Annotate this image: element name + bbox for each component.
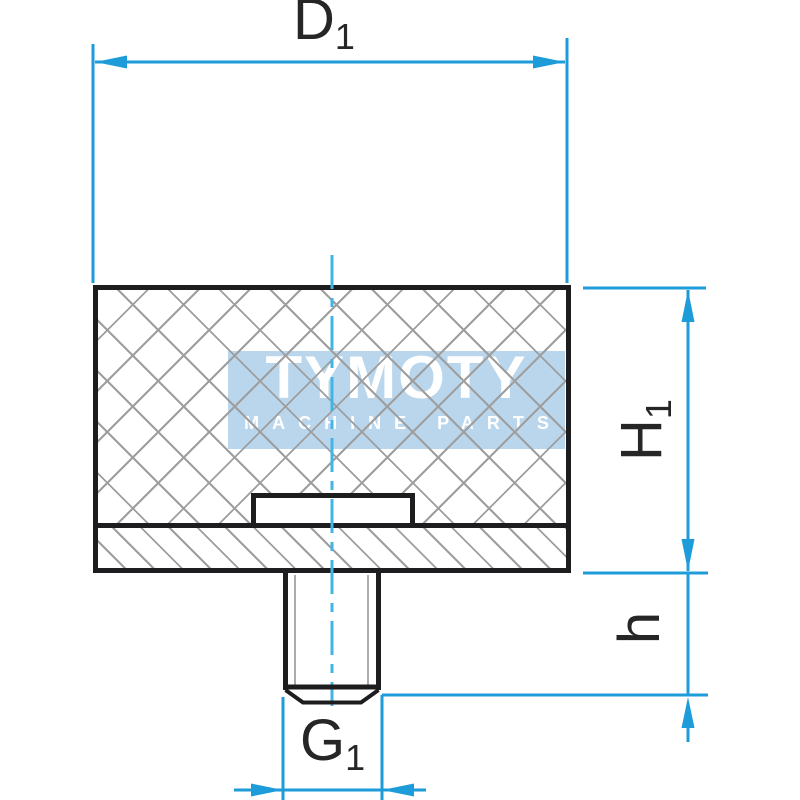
rubber-body: TYMOTY MACHINE PARTS [93,285,571,528]
base-plate [93,523,571,573]
watermark-brand: TYMOTY [266,351,528,408]
recess-pocket [251,493,415,525]
label-h1: H1 [590,375,700,485]
watermark: TYMOTY MACHINE PARTS [228,351,565,449]
label-d1: D1 [293,0,355,55]
label-h: h [588,573,698,683]
dimension-d1 [93,38,567,283]
label-g1: G1 [300,712,365,776]
watermark-tagline: MACHINE PARTS [231,414,562,432]
technical-drawing: TYMOTY MACHINE PARTS [0,0,800,800]
threaded-stud [283,573,381,703]
